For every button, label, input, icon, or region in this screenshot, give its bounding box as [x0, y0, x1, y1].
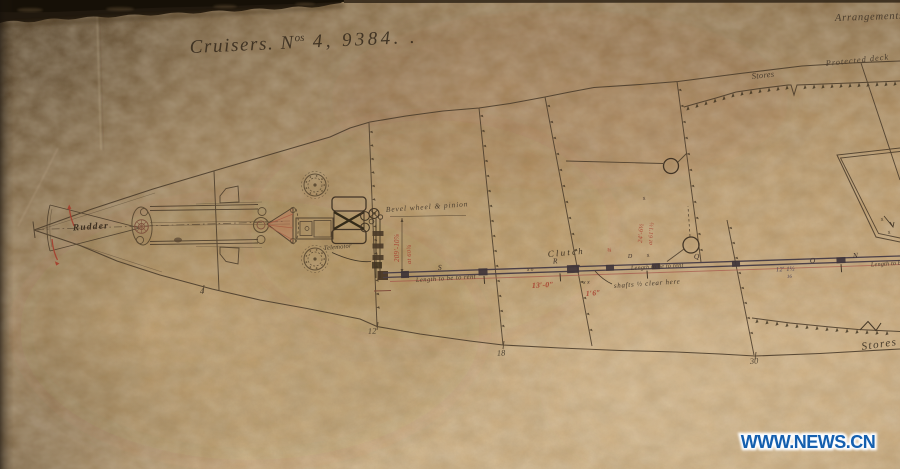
svg-text:13′-0″: 13′-0″: [532, 280, 554, 290]
svg-text:S: S: [438, 263, 442, 272]
svg-text:12: 12: [367, 325, 377, 336]
svg-text:18: 18: [496, 347, 506, 358]
svg-text:x o: x o: [526, 267, 534, 273]
svg-text:D: D: [627, 254, 633, 260]
svg-text:at 60¾: at 60¾: [406, 245, 413, 264]
svg-text:24′-6½: 24′-6½: [637, 223, 645, 243]
svg-text:12′ 1½: 12′ 1½: [776, 266, 795, 274]
svg-text:WWW.NEWS.CN: WWW.NEWS.CN: [741, 432, 875, 452]
svg-text:209′-10⅞: 209′-10⅞: [393, 234, 401, 262]
svg-text:x x: x x: [582, 280, 590, 286]
svg-text:1′6″: 1′6″: [586, 288, 602, 298]
svg-text:Arrangements: Arrangements: [834, 11, 900, 24]
svg-text:16: 16: [787, 275, 793, 280]
svg-text:30: 30: [748, 355, 759, 366]
